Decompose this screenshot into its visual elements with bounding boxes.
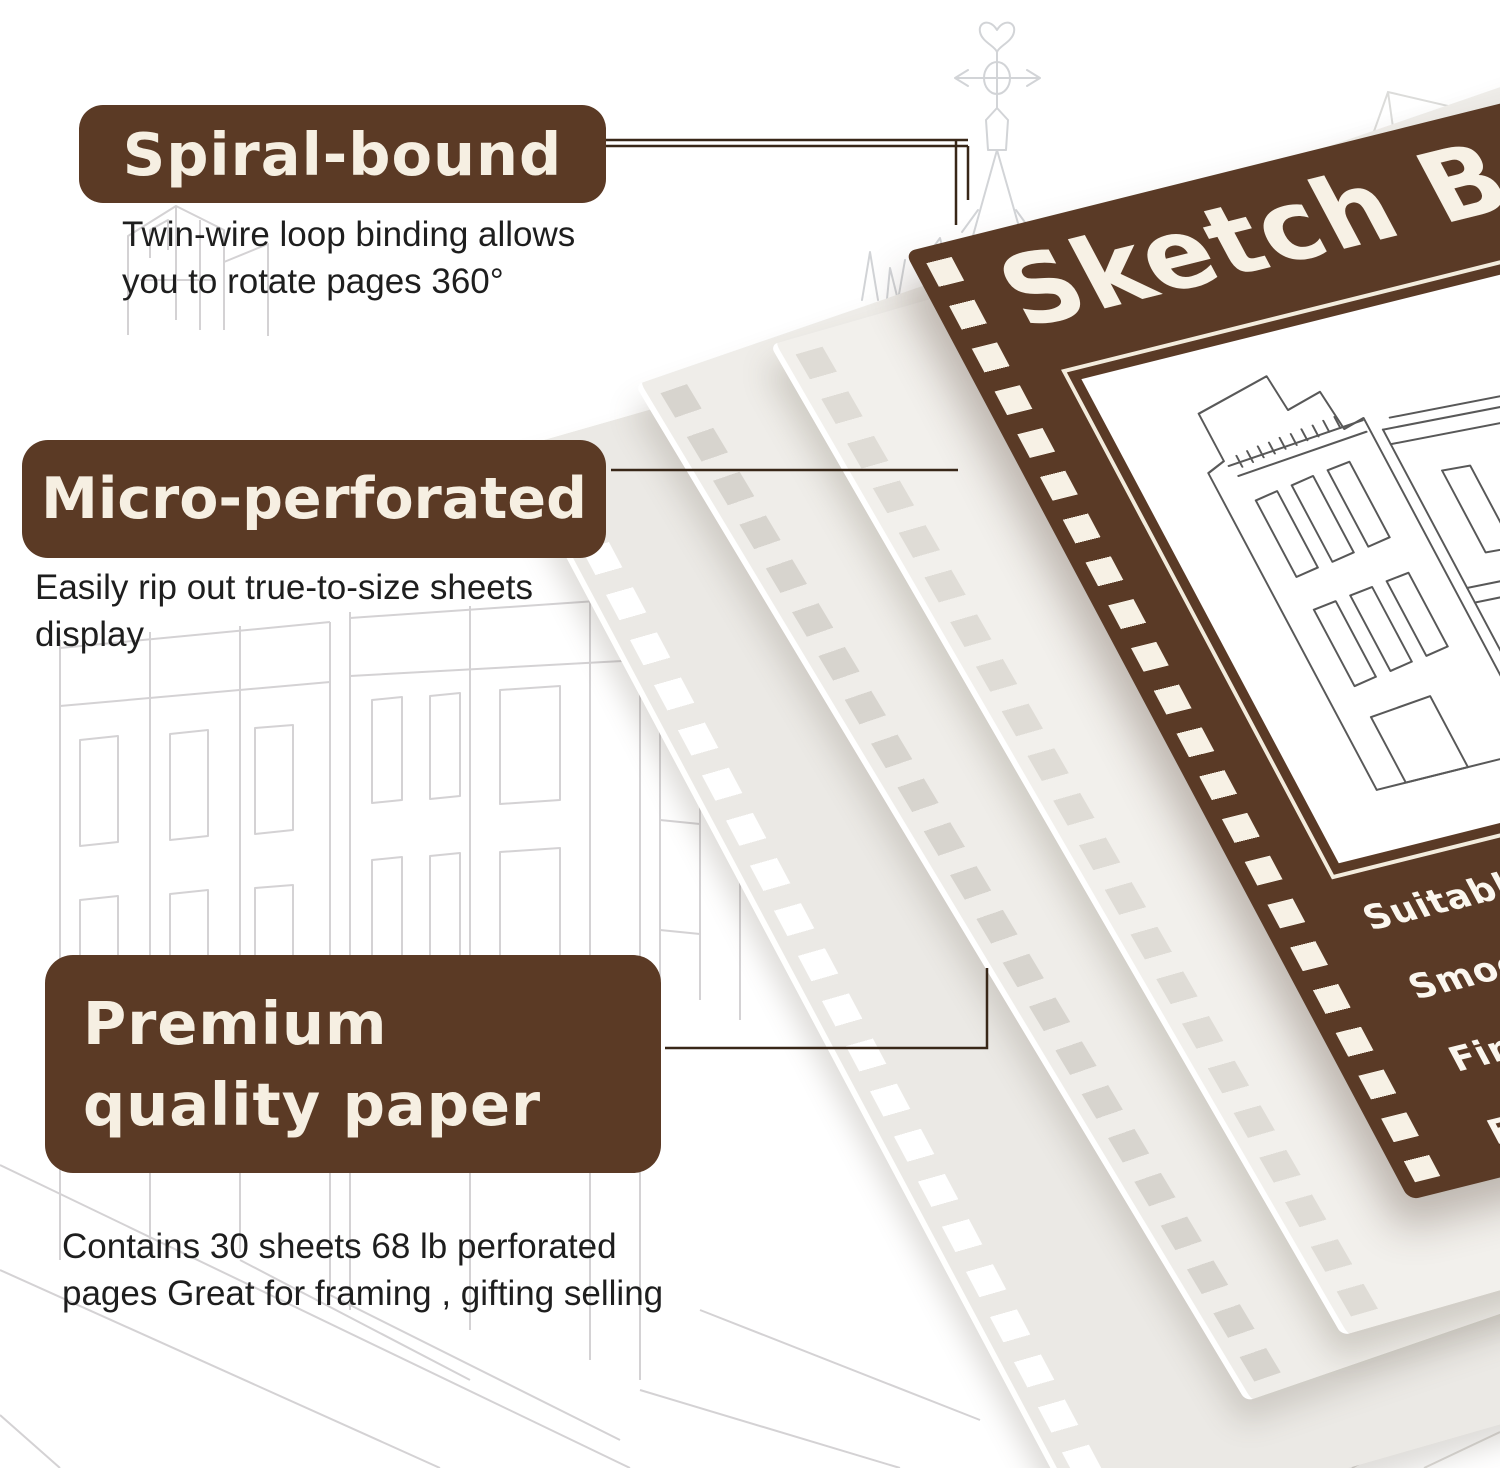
description-line: you to rotate pages 360°: [122, 259, 575, 306]
callout-badge-premium-quality-paper: Premium quality paper: [45, 955, 661, 1173]
callout-badge-spiral-bound: Spiral-bound: [79, 105, 606, 203]
callout-badge-micro-perforated: Micro-perforated: [22, 440, 606, 558]
callout-description-spiral-bound: Twin-wire loop binding allows you to rot…: [122, 212, 575, 306]
callout-description-premium-quality-paper: Contains 30 sheets 68 lb perforated page…: [62, 1224, 663, 1318]
description-line: display: [35, 612, 533, 659]
description-line: Contains 30 sheets 68 lb perforated: [62, 1224, 663, 1271]
leader-premium-paper: [665, 968, 987, 1048]
callout-description-micro-perforated: Easily rip out true-to-size sheets displ…: [35, 565, 533, 659]
product-infographic: Sketch Boo: [0, 0, 1500, 1468]
description-line: Twin-wire loop binding allows: [122, 212, 575, 259]
description-line: Easily rip out true-to-size sheets: [35, 565, 533, 612]
description-line: pages Great for framing , gifting sellin…: [62, 1271, 663, 1318]
callout-title: Spiral-bound: [123, 120, 563, 189]
callout-title: Micro-perforated: [41, 466, 587, 532]
callout-title-line: Premium: [83, 983, 388, 1064]
leader-spiral-bound: [605, 140, 968, 146]
callout-title-line: quality paper: [83, 1064, 541, 1145]
